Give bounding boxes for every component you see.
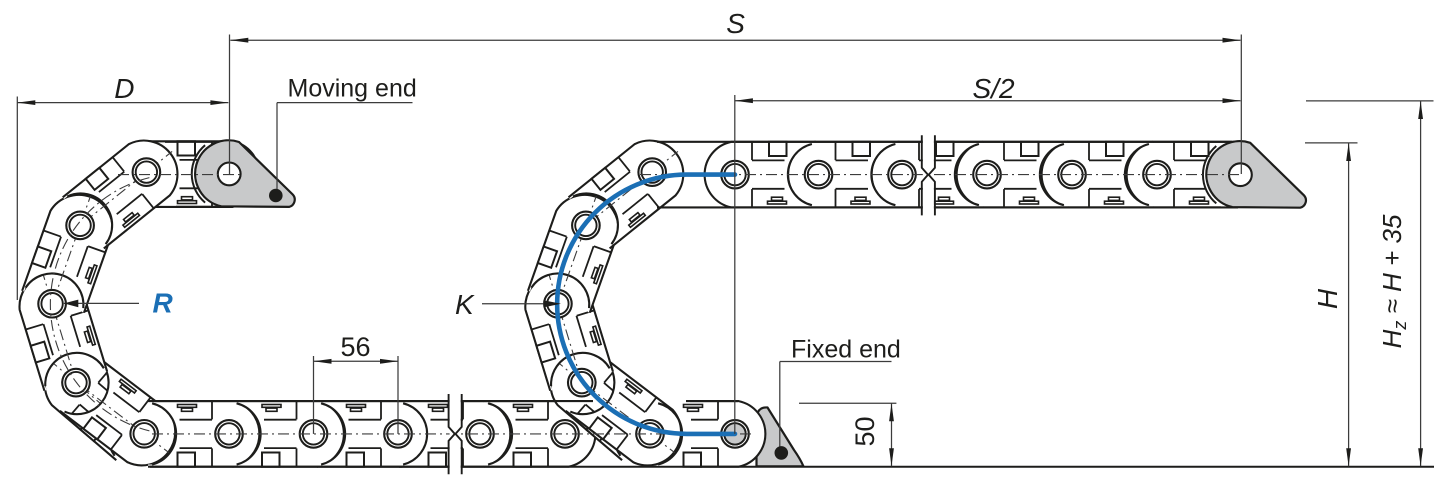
svg-text:S: S — [726, 8, 745, 39]
svg-text:R: R — [153, 288, 174, 319]
svg-text:H: H — [1312, 288, 1343, 309]
svg-text:50: 50 — [850, 416, 880, 446]
svg-text:Moving end: Moving end — [288, 75, 417, 103]
svg-text:56: 56 — [340, 332, 370, 362]
svg-text:K: K — [455, 289, 475, 320]
svg-text:Fixed end: Fixed end — [791, 336, 901, 364]
svg-text:S/2: S/2 — [972, 73, 1014, 104]
svg-text:D: D — [114, 73, 134, 104]
